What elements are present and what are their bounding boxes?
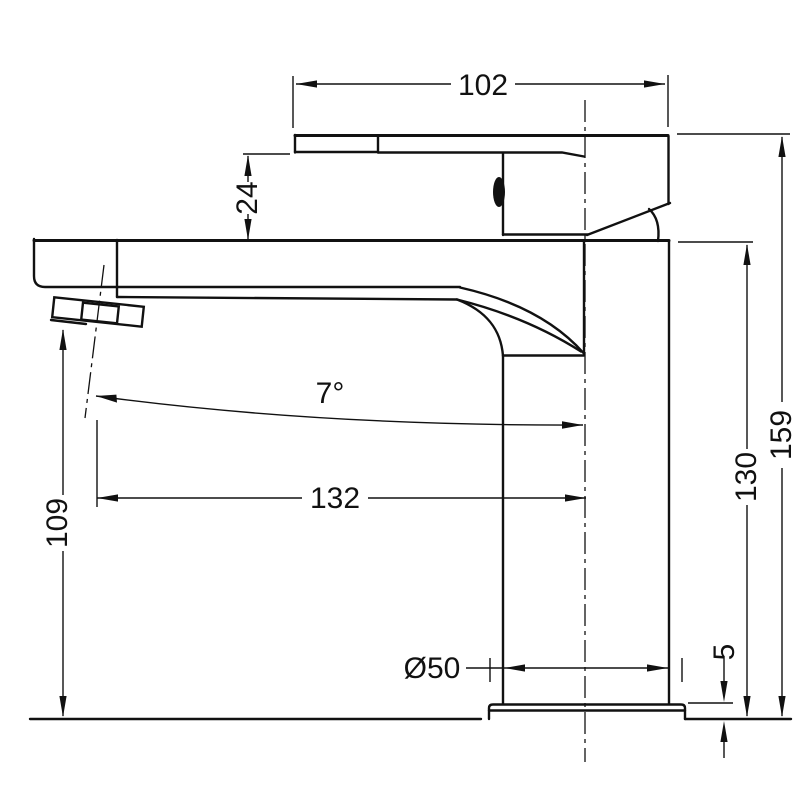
- spout-left-and-bottom: [34, 239, 460, 287]
- arrow-7deg-right: [562, 421, 583, 428]
- arrow-102-left: [296, 80, 317, 87]
- arrow-109-top: [59, 329, 66, 350]
- dim-base-thickness-label: 5: [708, 644, 741, 661]
- aerator-inner-box: [81, 303, 119, 324]
- arrow-102-right: [644, 80, 665, 87]
- dim-spout-angle-label: 7°: [316, 377, 345, 410]
- arrow-7deg-left: [96, 395, 117, 403]
- technical-drawing-page: 102 24 7° 132 109 130 159 5 Ø50: [0, 0, 800, 800]
- housing-fillet-arc: [649, 209, 659, 241]
- dim-spout-reach-label: 132: [310, 482, 360, 515]
- dim-lever-drop-label: 24: [231, 181, 264, 214]
- dim-spout-outlet-height-label: 109: [41, 498, 74, 548]
- dim-body-height-label: 130: [730, 452, 763, 502]
- dim-handle-width-label: 102: [458, 69, 508, 102]
- dimension-labels: 102 24 7° 132 109 130 159 5 Ø50: [41, 69, 798, 685]
- base-flange-outline: [489, 705, 685, 720]
- arrow-24-top: [244, 155, 251, 176]
- spout-fillet-curve: [457, 300, 503, 357]
- dim-base-diameter-label: Ø50: [404, 652, 461, 685]
- centerlines: [85, 100, 585, 762]
- arrow-5-bottom: [720, 721, 727, 742]
- arrow-159-top: [778, 136, 785, 157]
- arrow-109-bottom: [59, 696, 66, 717]
- arrow-24-bottom: [244, 219, 251, 240]
- arrow-130-bottom: [743, 696, 750, 717]
- arrowheads: [59, 80, 785, 742]
- dim-overall-height-label: 159: [765, 410, 798, 460]
- arrow-50-left: [504, 664, 525, 671]
- spout-under-inner-line: [117, 297, 457, 300]
- faucet-outline: [30, 135, 791, 719]
- temperature-indicator-dot: [493, 177, 505, 207]
- handle-underside-right: [378, 153, 584, 157]
- extension-lines: [97, 75, 790, 703]
- arrow-159-bottom: [778, 696, 785, 717]
- faucet-dimension-drawing: 102 24 7° 132 109 130 159 5 Ø50: [0, 0, 800, 800]
- arrow-132-left: [97, 494, 118, 501]
- arrow-132-right: [565, 494, 586, 501]
- arrow-50-right: [647, 664, 668, 671]
- arrow-5-top: [720, 681, 727, 702]
- arrow-130-top: [743, 244, 750, 265]
